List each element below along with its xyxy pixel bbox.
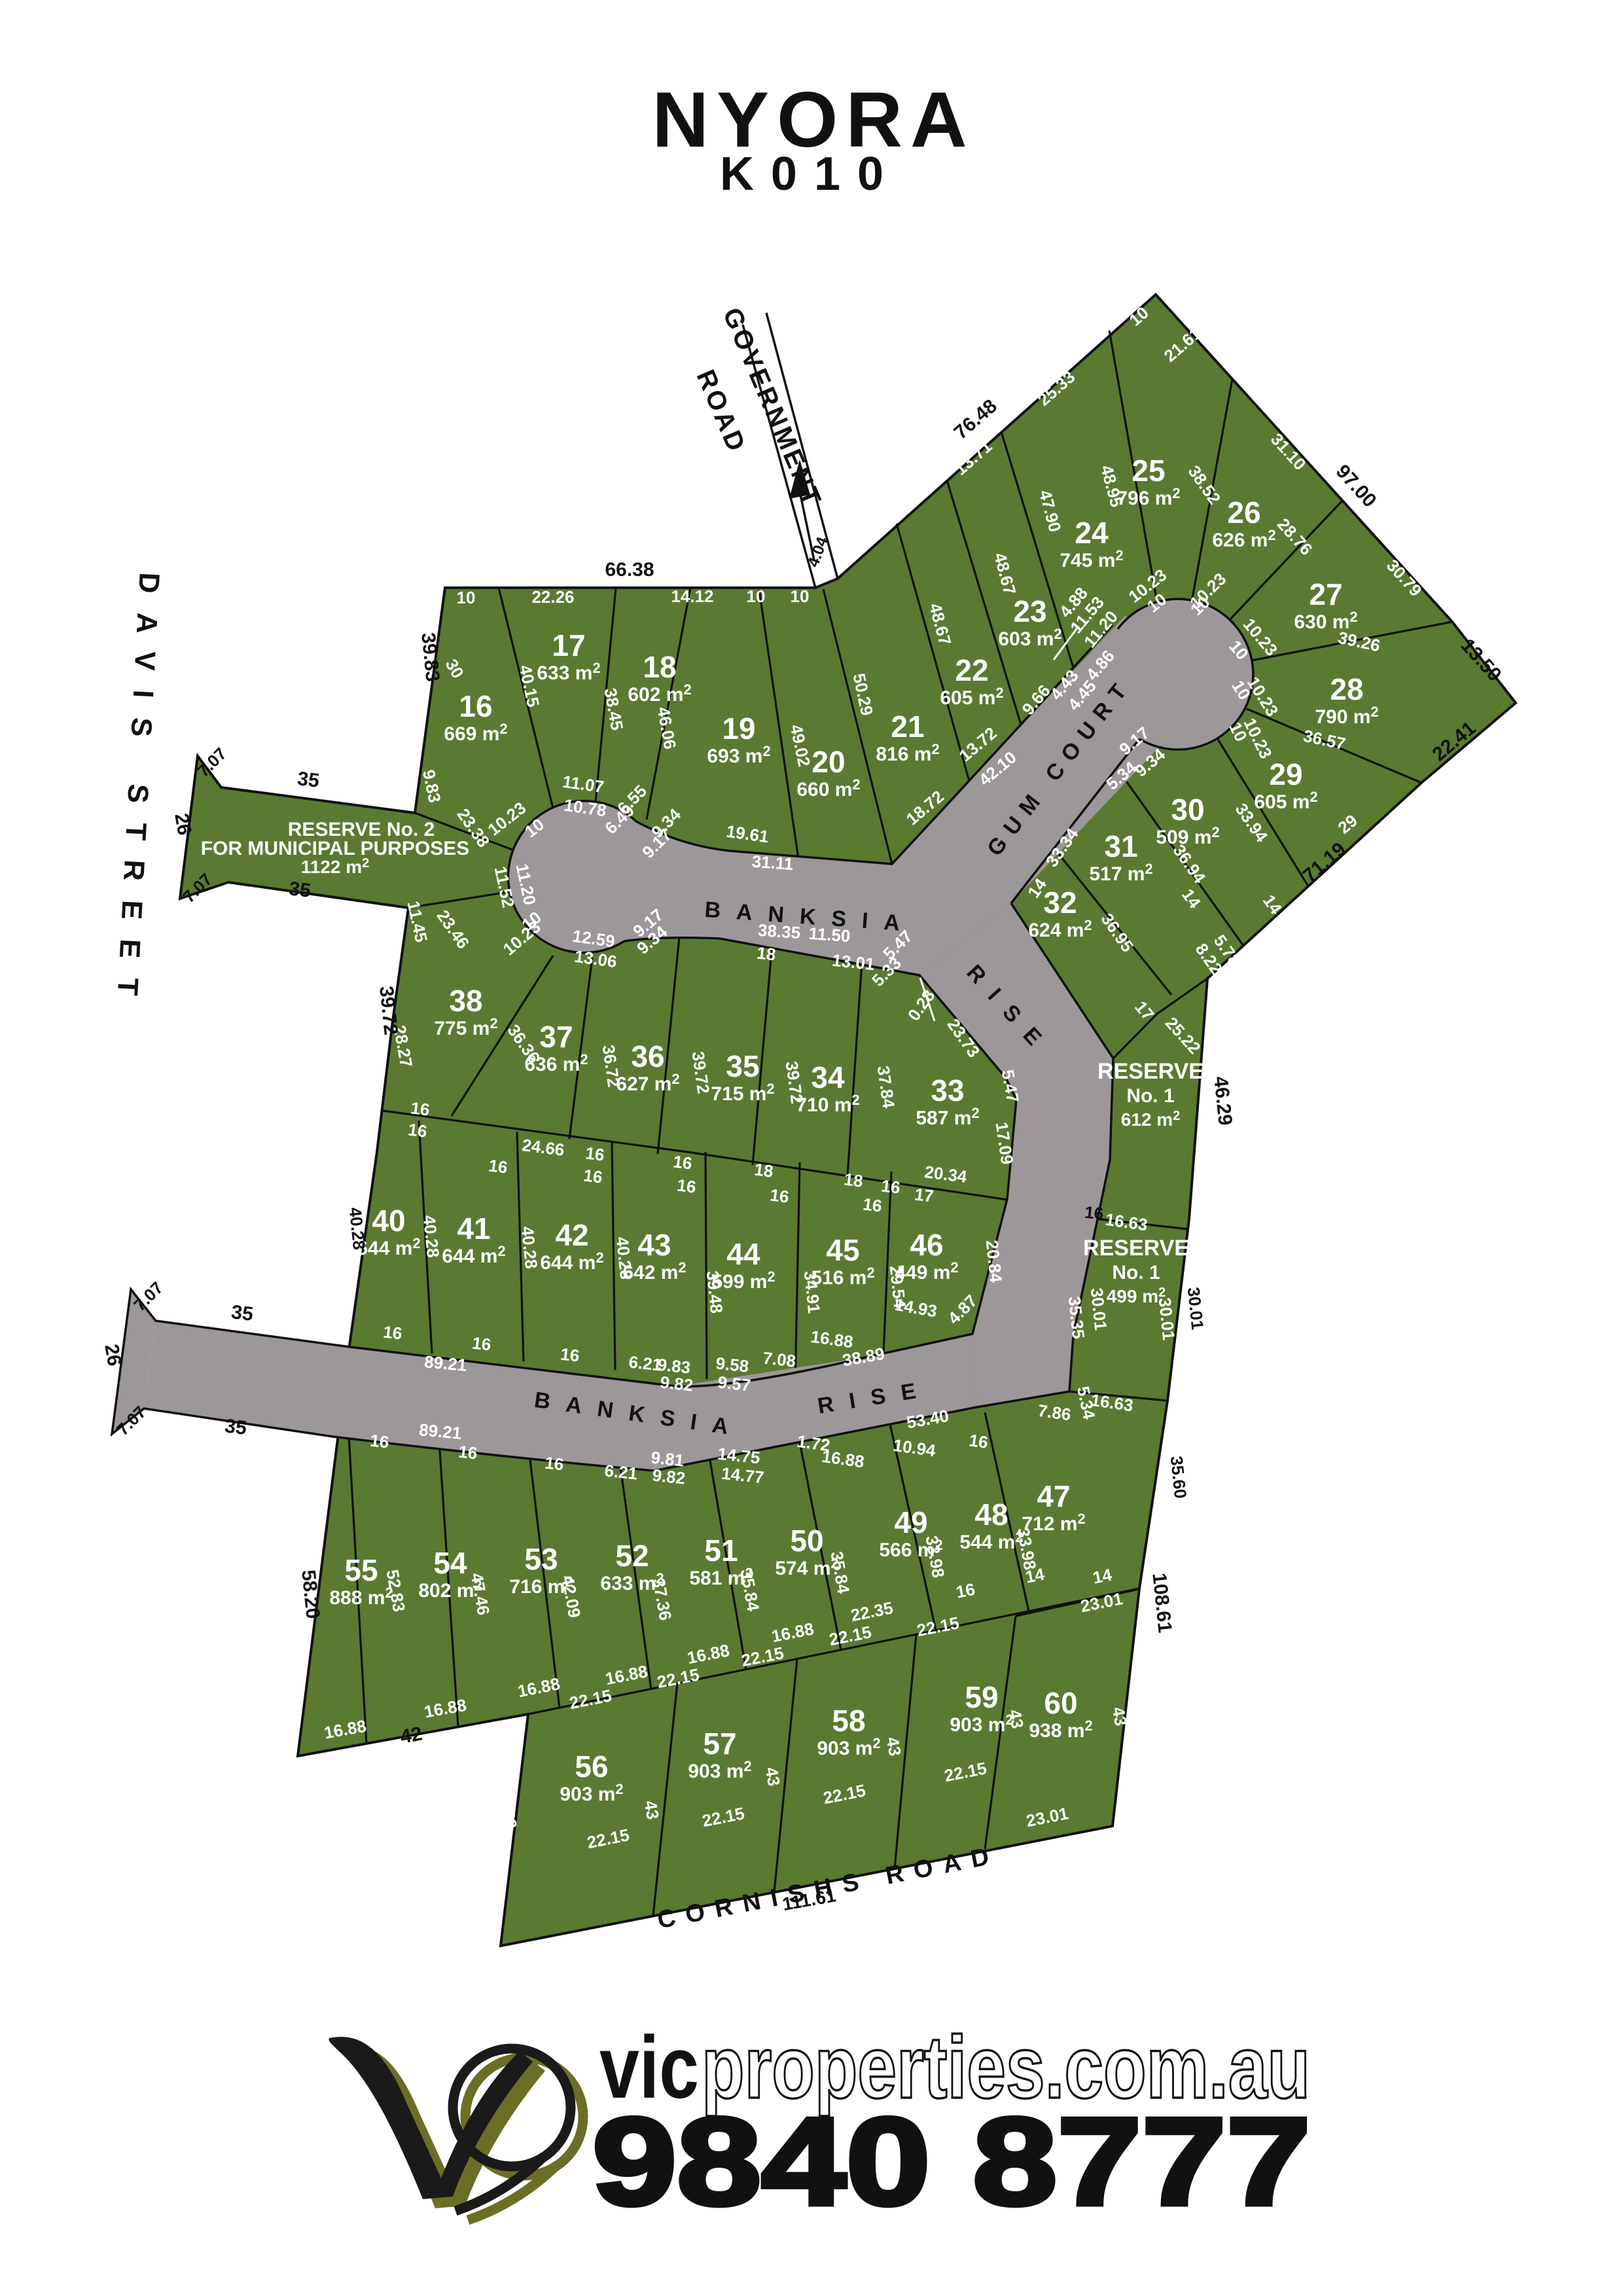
svg-text:745 m2: 745 m2: [1060, 547, 1123, 571]
svg-text:44: 44: [726, 1237, 760, 1271]
svg-text:9.82: 9.82: [651, 1465, 686, 1488]
svg-text:17: 17: [914, 1184, 935, 1206]
svg-text:59: 59: [965, 1680, 998, 1714]
svg-text:517 m2: 517 m2: [1089, 861, 1152, 885]
svg-text:544 m2: 544 m2: [959, 1529, 1023, 1553]
svg-text:16: 16: [968, 1430, 990, 1452]
svg-text:1122 m2: 1122 m2: [301, 856, 370, 877]
svg-text:816 m2: 816 m2: [876, 741, 939, 765]
svg-text:660 m2: 660 m2: [796, 776, 860, 800]
svg-text:23: 23: [1013, 594, 1046, 628]
svg-text:603 m2: 603 m2: [998, 626, 1061, 650]
svg-text:31: 31: [1104, 829, 1137, 863]
svg-text:29: 29: [1269, 757, 1302, 791]
svg-text:9.57: 9.57: [717, 1372, 751, 1395]
svg-text:58: 58: [832, 1704, 865, 1738]
svg-text:43: 43: [641, 1799, 664, 1821]
svg-text:790 m2: 790 m2: [1315, 704, 1378, 728]
svg-text:16: 16: [862, 1194, 883, 1215]
svg-text:903 m2: 903 m2: [817, 1735, 880, 1759]
svg-text:No. 1: No. 1: [1112, 1262, 1160, 1283]
svg-text:16: 16: [459, 689, 492, 723]
svg-text:627 m2: 627 m2: [616, 1071, 679, 1095]
svg-text:16: 16: [471, 1333, 492, 1355]
svg-text:35: 35: [230, 1301, 255, 1325]
svg-text:33: 33: [931, 1073, 964, 1107]
svg-text:17: 17: [552, 628, 585, 662]
svg-text:35: 35: [288, 878, 312, 902]
svg-text:43: 43: [499, 1808, 522, 1831]
svg-text:21: 21: [891, 709, 924, 744]
svg-text:16: 16: [582, 1165, 603, 1187]
svg-text:16: 16: [954, 1579, 976, 1602]
svg-text:38: 38: [449, 984, 482, 1018]
svg-text:43: 43: [637, 1228, 671, 1262]
svg-text:89.21: 89.21: [418, 1420, 462, 1443]
svg-text:16: 16: [676, 1175, 697, 1196]
svg-text:35: 35: [224, 1415, 248, 1439]
svg-text:37: 37: [539, 1020, 573, 1054]
svg-text:624 m2: 624 m2: [1028, 917, 1092, 941]
svg-text:28: 28: [1330, 672, 1363, 706]
svg-text:775 m2: 775 m2: [434, 1015, 497, 1039]
svg-text:35: 35: [726, 1049, 759, 1083]
svg-text:26: 26: [100, 1342, 125, 1368]
svg-text:46: 46: [910, 1228, 943, 1262]
svg-text:16: 16: [584, 1143, 605, 1164]
svg-text:41: 41: [457, 1211, 490, 1246]
svg-text:40: 40: [372, 1204, 405, 1238]
svg-text:89.21: 89.21: [423, 1352, 467, 1375]
svg-text:888 m2: 888 m2: [329, 1585, 393, 1609]
svg-text:66.38: 66.38: [605, 559, 654, 581]
svg-text:30: 30: [1171, 793, 1204, 827]
svg-text:22.26: 22.26: [531, 587, 574, 607]
svg-text:18: 18: [643, 650, 676, 684]
svg-text:9.82: 9.82: [659, 1372, 694, 1395]
svg-text:51: 51: [704, 1534, 738, 1568]
svg-text:633 m2: 633 m2: [537, 660, 600, 684]
svg-text:644 m2: 644 m2: [540, 1249, 603, 1274]
svg-text:26: 26: [170, 812, 195, 837]
svg-text:612 m2: 612 m2: [1121, 1109, 1181, 1130]
svg-text:18: 18: [753, 1159, 774, 1181]
svg-text:43: 43: [1005, 1708, 1028, 1731]
svg-text:19: 19: [722, 711, 755, 745]
svg-text:35: 35: [296, 768, 321, 792]
svg-text:27: 27: [1309, 577, 1342, 611]
svg-text:10: 10: [791, 586, 810, 606]
svg-text:10: 10: [457, 588, 476, 607]
svg-text:644 m2: 644 m2: [442, 1243, 505, 1267]
svg-text:42: 42: [555, 1218, 588, 1252]
svg-text:25: 25: [1132, 454, 1165, 488]
svg-text:16: 16: [457, 1442, 478, 1463]
svg-text:RESERVE: RESERVE: [1083, 1236, 1189, 1261]
svg-text:60: 60: [1044, 1686, 1077, 1720]
svg-text:20: 20: [811, 745, 845, 779]
svg-text:32: 32: [1043, 886, 1077, 920]
svg-text:16: 16: [369, 1431, 390, 1452]
svg-text:16: 16: [382, 1322, 403, 1344]
svg-text:48: 48: [974, 1498, 1008, 1532]
svg-text:16: 16: [544, 1453, 565, 1475]
svg-text:50: 50: [790, 1524, 823, 1558]
svg-text:602 m2: 602 m2: [628, 681, 691, 706]
svg-text:7.08: 7.08: [762, 1348, 796, 1371]
svg-text:605 m2: 605 m2: [1254, 789, 1317, 813]
svg-text:18: 18: [756, 943, 777, 965]
svg-text:938 m2: 938 m2: [1029, 1717, 1092, 1742]
svg-text:14.12: 14.12: [671, 586, 713, 606]
svg-text:16: 16: [672, 1151, 693, 1173]
svg-text:16: 16: [407, 1119, 428, 1141]
svg-text:587 m2: 587 m2: [916, 1105, 979, 1129]
svg-text:6.21: 6.21: [603, 1460, 638, 1483]
svg-text:47: 47: [1037, 1479, 1070, 1513]
svg-text:24: 24: [1075, 516, 1109, 550]
svg-text:16: 16: [410, 1098, 431, 1119]
svg-text:16: 16: [560, 1344, 580, 1366]
svg-text:42: 42: [399, 1723, 424, 1748]
svg-text:52: 52: [615, 1539, 649, 1573]
svg-text:626 m2: 626 m2: [1212, 527, 1275, 551]
svg-text:31.11: 31.11: [751, 852, 794, 874]
svg-text:43: 43: [1109, 1706, 1132, 1728]
svg-text:49: 49: [894, 1505, 927, 1539]
svg-text:10: 10: [747, 586, 766, 606]
svg-text:605 m2: 605 m2: [940, 685, 1003, 709]
svg-text:57: 57: [703, 1727, 736, 1761]
svg-text:55: 55: [344, 1553, 378, 1587]
svg-text:715 m2: 715 m2: [711, 1081, 774, 1105]
svg-text:53: 53: [524, 1542, 558, 1576]
svg-text:26: 26: [1227, 495, 1260, 529]
svg-text:16: 16: [769, 1185, 790, 1206]
svg-text:903 m2: 903 m2: [688, 1758, 751, 1782]
svg-text:903 m2: 903 m2: [560, 1781, 623, 1805]
svg-text:18: 18: [843, 1169, 864, 1191]
svg-text:RESERVE: RESERVE: [1097, 1059, 1204, 1084]
svg-text:36: 36: [631, 1039, 664, 1073]
svg-text:693 m2: 693 m2: [707, 743, 770, 767]
svg-text:9840 8777: 9840 8777: [592, 2092, 1311, 2231]
svg-text:22: 22: [955, 653, 988, 687]
svg-text:K010: K010: [720, 148, 901, 200]
svg-text:34: 34: [811, 1060, 845, 1094]
svg-text:54: 54: [433, 1546, 467, 1580]
svg-text:796 m2: 796 m2: [1116, 485, 1180, 509]
svg-text:43: 43: [762, 1766, 785, 1788]
svg-text:669 m2: 669 m2: [444, 721, 507, 745]
svg-text:16: 16: [1084, 1202, 1104, 1223]
svg-text:16: 16: [488, 1155, 508, 1177]
svg-text:16: 16: [880, 1175, 901, 1197]
svg-text:903 m2: 903 m2: [950, 1712, 1013, 1736]
svg-text:43: 43: [883, 1736, 906, 1758]
svg-text:56: 56: [575, 1749, 608, 1784]
svg-text:45: 45: [826, 1233, 859, 1267]
svg-text:No. 1: No. 1: [1126, 1085, 1174, 1107]
